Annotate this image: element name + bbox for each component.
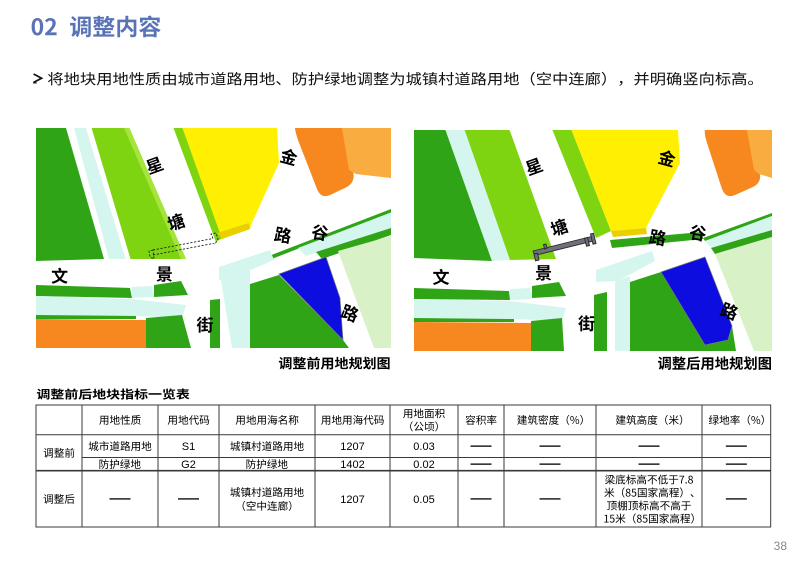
svg-text:0.03: 0.03	[413, 441, 434, 453]
svg-text:1402: 1402	[340, 459, 364, 471]
svg-text:0.05: 0.05	[413, 494, 434, 506]
svg-text:1207: 1207	[340, 441, 364, 453]
svg-text:38: 38	[774, 539, 788, 553]
svg-text:S1: S1	[182, 441, 195, 453]
svg-text:1207: 1207	[340, 494, 364, 506]
svg-text:0.02: 0.02	[413, 459, 434, 471]
svg-text:G2: G2	[181, 459, 196, 471]
